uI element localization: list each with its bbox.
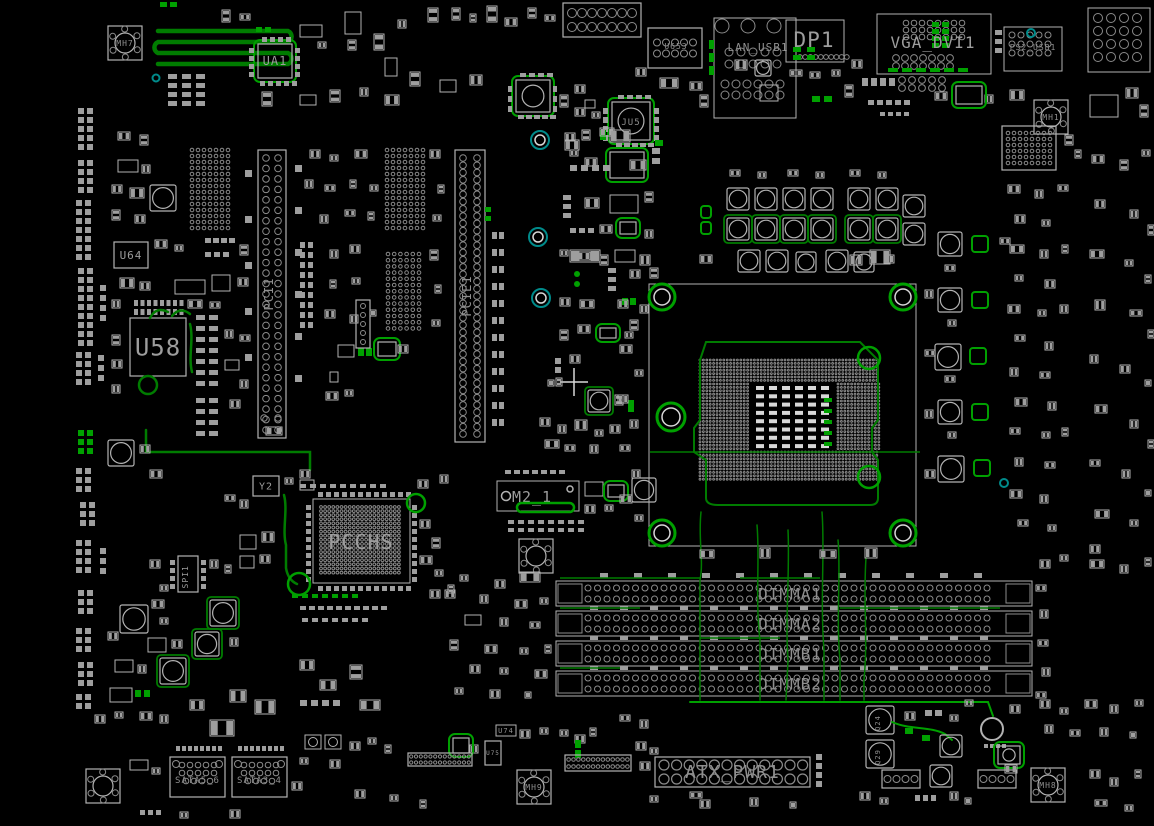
r2 bbox=[788, 170, 798, 176]
svg-text:PCCHS: PCCHS bbox=[328, 530, 393, 554]
circ bbox=[574, 281, 580, 287]
pad-array bbox=[553, 86, 557, 112]
text: PCCHS bbox=[328, 530, 393, 554]
r2 bbox=[820, 550, 836, 558]
r2 bbox=[222, 10, 230, 22]
r2 bbox=[558, 425, 566, 433]
pad-array bbox=[816, 754, 822, 787]
r2 bbox=[152, 768, 160, 774]
r2 bbox=[210, 560, 218, 568]
pad-array bbox=[628, 400, 634, 412]
header-pads bbox=[78, 430, 93, 454]
box bbox=[110, 688, 132, 702]
r2 bbox=[592, 112, 600, 118]
r2 bbox=[1062, 428, 1068, 436]
r2 bbox=[945, 265, 955, 271]
box bbox=[175, 280, 205, 294]
r2 bbox=[345, 210, 355, 216]
r2 bbox=[432, 320, 440, 326]
r2 bbox=[1095, 510, 1109, 518]
dimm-slot-a1[interactable]: DIMMA1 bbox=[556, 581, 1032, 606]
pad-array bbox=[925, 710, 942, 716]
svg-text:LAN_USB1: LAN_USB1 bbox=[728, 41, 789, 54]
grid bbox=[798, 55, 850, 60]
r2 bbox=[325, 310, 335, 318]
r2 bbox=[155, 240, 167, 248]
pad-array bbox=[245, 170, 252, 361]
r2 bbox=[730, 170, 740, 176]
pad-array bbox=[652, 148, 660, 164]
r2 bbox=[640, 255, 650, 265]
r2 bbox=[430, 590, 440, 598]
box bbox=[338, 345, 354, 357]
cap bbox=[935, 344, 961, 370]
r2 bbox=[430, 250, 438, 260]
sata5-6-connector[interactable]: SATA5_6 bbox=[170, 757, 225, 797]
pad-array bbox=[868, 100, 910, 105]
r2 bbox=[750, 798, 758, 806]
r2 bbox=[545, 440, 559, 448]
cap bbox=[585, 387, 613, 415]
r2 bbox=[1058, 185, 1068, 191]
r2 bbox=[135, 215, 145, 223]
cap bbox=[938, 288, 962, 312]
r2 bbox=[435, 285, 441, 293]
pad-array bbox=[570, 228, 594, 233]
box bbox=[385, 58, 397, 76]
mounting-hole[interactable] bbox=[519, 539, 553, 573]
chip bbox=[952, 82, 986, 108]
pad-array bbox=[563, 195, 571, 218]
r2 bbox=[640, 720, 648, 728]
r2 bbox=[700, 800, 710, 808]
r2 bbox=[1036, 692, 1046, 698]
r2 bbox=[525, 692, 531, 698]
sata3-4-connector[interactable]: SATA3_4 bbox=[232, 757, 287, 797]
pad-array bbox=[492, 232, 504, 426]
r2 bbox=[1042, 432, 1050, 438]
r2 bbox=[345, 390, 353, 396]
circ bbox=[981, 718, 1003, 740]
r2 bbox=[810, 72, 820, 78]
dimm-slot-b1[interactable]: DIMMB1 bbox=[556, 641, 1032, 666]
r2 bbox=[420, 556, 432, 564]
cap bbox=[930, 765, 952, 787]
r2 bbox=[760, 548, 770, 558]
r2 bbox=[965, 798, 971, 804]
r2 bbox=[433, 215, 441, 221]
r2 bbox=[485, 645, 497, 653]
header-pads bbox=[78, 160, 93, 193]
r2 bbox=[160, 715, 168, 723]
r2 bbox=[310, 150, 320, 158]
r2 bbox=[330, 155, 338, 161]
r2 bbox=[112, 210, 120, 220]
pin-field bbox=[386, 252, 421, 330]
cpu-center-pads bbox=[756, 386, 829, 448]
r2 bbox=[225, 330, 233, 338]
cpu-bga bbox=[837, 383, 880, 449]
r2 bbox=[1010, 368, 1018, 376]
trace bbox=[690, 702, 993, 716]
r2 bbox=[1040, 560, 1050, 568]
pad-array bbox=[655, 140, 663, 146]
r2 bbox=[630, 160, 646, 170]
svg-text:PCIE1: PCIE1 bbox=[460, 275, 474, 316]
origin-marker bbox=[560, 368, 588, 396]
u58-chip[interactable]: U58 bbox=[130, 318, 186, 376]
cap bbox=[120, 605, 148, 633]
r2 bbox=[1090, 770, 1100, 778]
mounting-hole-mh1[interactable]: MH1 bbox=[1034, 100, 1068, 134]
usb-header[interactable] bbox=[565, 755, 631, 771]
box bbox=[585, 482, 603, 496]
r2 bbox=[330, 760, 340, 768]
r2 bbox=[460, 575, 468, 581]
r2 bbox=[1040, 495, 1048, 503]
r2 bbox=[585, 158, 597, 166]
pad-array bbox=[905, 728, 913, 734]
r2 bbox=[1125, 260, 1133, 266]
cap bbox=[752, 215, 780, 243]
pad-array bbox=[306, 505, 311, 582]
r2 bbox=[435, 570, 443, 576]
cap bbox=[938, 400, 962, 424]
r2 bbox=[700, 550, 714, 558]
r2 bbox=[1015, 275, 1023, 281]
r2 bbox=[548, 380, 554, 386]
r2 bbox=[348, 40, 356, 50]
q24-cap[interactable]: Q24 bbox=[866, 706, 894, 734]
pad-array bbox=[812, 96, 832, 102]
pad-array bbox=[201, 560, 206, 589]
r2 bbox=[1040, 250, 1048, 258]
r2 bbox=[1120, 365, 1130, 373]
r2 bbox=[326, 392, 338, 400]
dimm-slot-a2[interactable]: DIMMA2 bbox=[556, 611, 1032, 636]
header-pads bbox=[78, 662, 93, 686]
r2 bbox=[1065, 135, 1073, 145]
text: LAN_USB1 bbox=[728, 41, 789, 54]
r2 bbox=[1018, 520, 1028, 526]
r2 bbox=[632, 470, 640, 478]
atx-power-connector[interactable]: ATX_PWR1 bbox=[655, 757, 810, 787]
r2 bbox=[115, 712, 123, 718]
r2 bbox=[1090, 545, 1100, 553]
pad-array bbox=[915, 795, 936, 801]
r2 bbox=[545, 645, 551, 653]
cap bbox=[938, 456, 964, 482]
r2 bbox=[580, 300, 594, 308]
r2 bbox=[95, 715, 105, 723]
r2 bbox=[360, 700, 380, 710]
via-ring bbox=[531, 131, 549, 149]
io-pin-block[interactable] bbox=[1002, 126, 1056, 170]
r2 bbox=[560, 95, 568, 107]
r2 bbox=[575, 108, 585, 116]
svg-text:DIMMB2: DIMMB2 bbox=[758, 675, 822, 694]
r2 bbox=[1130, 310, 1142, 316]
box bbox=[225, 360, 239, 370]
r2 bbox=[700, 255, 712, 263]
r2 bbox=[790, 802, 796, 808]
r2 bbox=[438, 185, 444, 193]
pad-array bbox=[196, 398, 218, 436]
trace bbox=[190, 324, 192, 372]
r2 bbox=[1148, 330, 1154, 338]
text: PS2_USB1 bbox=[1010, 43, 1057, 52]
mounting-hole-mh9[interactable]: MH9 bbox=[517, 770, 551, 804]
r2 bbox=[470, 14, 476, 22]
r2 bbox=[515, 600, 527, 608]
r2 bbox=[500, 618, 508, 626]
q29-cap[interactable]: Q29 bbox=[866, 740, 894, 768]
r2 bbox=[540, 728, 548, 734]
r2 bbox=[1045, 280, 1055, 288]
pcie1-slot[interactable]: PCIE1 bbox=[455, 150, 485, 442]
r2 bbox=[350, 742, 360, 750]
r2 bbox=[300, 660, 314, 670]
pad-array bbox=[508, 520, 584, 532]
svg-text:JU5: JU5 bbox=[621, 118, 640, 128]
header-pads bbox=[80, 502, 95, 526]
r2 bbox=[905, 712, 915, 720]
svg-text:MH7: MH7 bbox=[116, 39, 133, 48]
r2 bbox=[238, 278, 248, 286]
r2 bbox=[240, 245, 248, 255]
r2 bbox=[878, 172, 886, 178]
svg-text:U58: U58 bbox=[135, 333, 181, 361]
r2 bbox=[595, 430, 603, 436]
box bbox=[330, 372, 338, 382]
pad-array bbox=[300, 242, 313, 328]
spi1-chip[interactable]: SPI1 bbox=[178, 556, 198, 592]
rrect bbox=[972, 292, 988, 308]
socket-hole bbox=[649, 284, 675, 310]
r2 bbox=[190, 700, 204, 710]
circ bbox=[502, 492, 511, 501]
cap bbox=[207, 597, 239, 629]
vertical-header[interactable] bbox=[356, 300, 370, 348]
r2 bbox=[112, 335, 120, 345]
r2 bbox=[150, 470, 162, 478]
cap bbox=[632, 478, 656, 502]
r2 bbox=[385, 745, 391, 753]
svg-text:SPI1: SPI1 bbox=[181, 565, 190, 588]
box bbox=[240, 556, 254, 568]
top-header[interactable] bbox=[563, 3, 641, 37]
boardview-canvas[interactable]: MH7UA1U653LAN_USB1DP1VGA_DVI1PS2_USB1MH1… bbox=[0, 0, 1154, 826]
svg-text:UA1: UA1 bbox=[263, 54, 288, 68]
r2 bbox=[320, 215, 328, 223]
r2 bbox=[230, 638, 238, 646]
r2 bbox=[570, 150, 578, 156]
header-pads bbox=[76, 468, 91, 492]
r2 bbox=[487, 6, 497, 22]
r2 bbox=[880, 798, 888, 804]
r2 bbox=[1008, 305, 1020, 313]
r2 bbox=[420, 520, 430, 528]
grid bbox=[715, 19, 781, 33]
r2 bbox=[1070, 730, 1080, 736]
r2 bbox=[398, 345, 408, 353]
pad-array bbox=[590, 666, 988, 670]
pad-array bbox=[140, 810, 161, 815]
rrect bbox=[974, 460, 990, 476]
fan-header[interactable] bbox=[882, 770, 920, 788]
r2 bbox=[585, 505, 595, 513]
socket-hole bbox=[657, 403, 685, 431]
pad-array bbox=[196, 315, 218, 386]
cpu-bga bbox=[699, 383, 748, 449]
pad-array bbox=[300, 606, 387, 610]
r2 bbox=[870, 250, 890, 264]
r2 bbox=[1060, 305, 1068, 313]
socket-hole bbox=[890, 284, 916, 310]
r2 bbox=[1010, 705, 1020, 713]
r2 bbox=[172, 640, 182, 648]
r2 bbox=[1038, 310, 1046, 316]
r2 bbox=[636, 68, 646, 76]
r2 bbox=[925, 410, 933, 418]
r2 bbox=[816, 172, 824, 178]
pad-array bbox=[135, 690, 150, 697]
r2 bbox=[1000, 238, 1010, 244]
rrect bbox=[701, 222, 711, 234]
r2 bbox=[1040, 700, 1050, 708]
svg-text:MH1: MH1 bbox=[1042, 113, 1059, 122]
r2 bbox=[585, 198, 599, 208]
r2 bbox=[355, 150, 367, 158]
circ bbox=[139, 376, 157, 394]
r2 bbox=[160, 618, 168, 624]
rrect bbox=[972, 236, 988, 252]
r2 bbox=[112, 300, 120, 308]
r2 bbox=[112, 385, 120, 393]
r2 bbox=[1048, 525, 1056, 531]
r2 bbox=[500, 668, 508, 674]
box bbox=[300, 95, 316, 105]
grid bbox=[893, 55, 954, 70]
r2 bbox=[570, 355, 580, 363]
pci1-slot[interactable]: PCI1 bbox=[258, 150, 286, 438]
pad-array bbox=[205, 238, 235, 243]
rrect bbox=[972, 404, 988, 420]
pad-array bbox=[508, 86, 512, 112]
r2 bbox=[320, 680, 336, 690]
box bbox=[610, 195, 638, 213]
r2 bbox=[1036, 585, 1046, 591]
u64-chip[interactable]: U64 bbox=[114, 242, 148, 268]
cap bbox=[738, 250, 760, 272]
box bbox=[130, 760, 148, 770]
mounting-hole[interactable] bbox=[86, 769, 120, 803]
trace bbox=[284, 495, 297, 584]
chip bbox=[994, 742, 1024, 768]
r2 bbox=[625, 332, 633, 338]
pad-array bbox=[168, 74, 205, 106]
r2 bbox=[108, 632, 118, 640]
r2 bbox=[630, 270, 640, 278]
r2 bbox=[355, 790, 365, 798]
r2 bbox=[845, 85, 853, 97]
pad-array bbox=[862, 78, 895, 86]
r2 bbox=[112, 185, 122, 193]
dimm-slot-b2[interactable]: DIMMB2 bbox=[556, 671, 1032, 696]
rrect bbox=[970, 348, 986, 364]
r2 bbox=[266, 427, 282, 435]
r2 bbox=[455, 688, 463, 694]
chip bbox=[374, 338, 400, 360]
r2 bbox=[860, 792, 870, 800]
r2 bbox=[545, 15, 555, 21]
cap bbox=[766, 250, 788, 272]
r2 bbox=[636, 742, 646, 750]
pad-array bbox=[485, 207, 491, 221]
r2 bbox=[852, 60, 862, 68]
r2 bbox=[1100, 728, 1108, 736]
choke bbox=[727, 188, 749, 210]
r2 bbox=[1120, 565, 1128, 573]
front-panel-header[interactable] bbox=[408, 753, 472, 766]
r2 bbox=[1140, 105, 1148, 117]
box bbox=[118, 160, 138, 172]
r2 bbox=[370, 310, 376, 316]
r2 bbox=[130, 188, 144, 198]
text: U653 bbox=[664, 42, 687, 51]
grid bbox=[1094, 14, 1142, 62]
r2 bbox=[1145, 558, 1151, 566]
r2 bbox=[1148, 225, 1154, 235]
cap bbox=[873, 215, 901, 243]
r2 bbox=[590, 445, 598, 453]
trace bbox=[864, 558, 866, 700]
mounting-hole-mh8[interactable]: MH8 bbox=[1031, 768, 1065, 802]
y2-crystal[interactable]: Y2 bbox=[253, 476, 279, 496]
audio-codec-chip[interactable] bbox=[512, 76, 554, 116]
r2 bbox=[650, 748, 658, 754]
r2 bbox=[180, 812, 188, 818]
r2 bbox=[925, 470, 935, 478]
r2 bbox=[138, 665, 146, 673]
r2 bbox=[398, 20, 406, 28]
r2 bbox=[640, 305, 648, 313]
trace bbox=[838, 540, 840, 700]
u75-chip[interactable]: U75 bbox=[485, 741, 501, 765]
grid bbox=[721, 80, 784, 99]
r2 bbox=[350, 665, 362, 679]
r2 bbox=[1045, 725, 1053, 733]
svg-text:DP1: DP1 bbox=[794, 28, 835, 52]
r2 bbox=[610, 425, 620, 433]
pin-field bbox=[385, 148, 425, 230]
svg-text:VGA_DVI1: VGA_DVI1 bbox=[890, 33, 975, 52]
mounting-hole-mh7[interactable]: MH7 bbox=[108, 26, 142, 60]
r2 bbox=[255, 700, 275, 714]
r2 bbox=[330, 280, 336, 288]
r2 bbox=[1075, 150, 1081, 158]
via-ring bbox=[529, 228, 547, 246]
r2 bbox=[1130, 520, 1138, 526]
r2 bbox=[374, 34, 384, 50]
r2 bbox=[240, 14, 250, 20]
r2 bbox=[1130, 210, 1138, 218]
pad-array bbox=[358, 348, 372, 356]
pad-array bbox=[922, 735, 930, 741]
r2 bbox=[350, 315, 358, 323]
r2 bbox=[530, 622, 540, 628]
r2 bbox=[1042, 668, 1050, 676]
